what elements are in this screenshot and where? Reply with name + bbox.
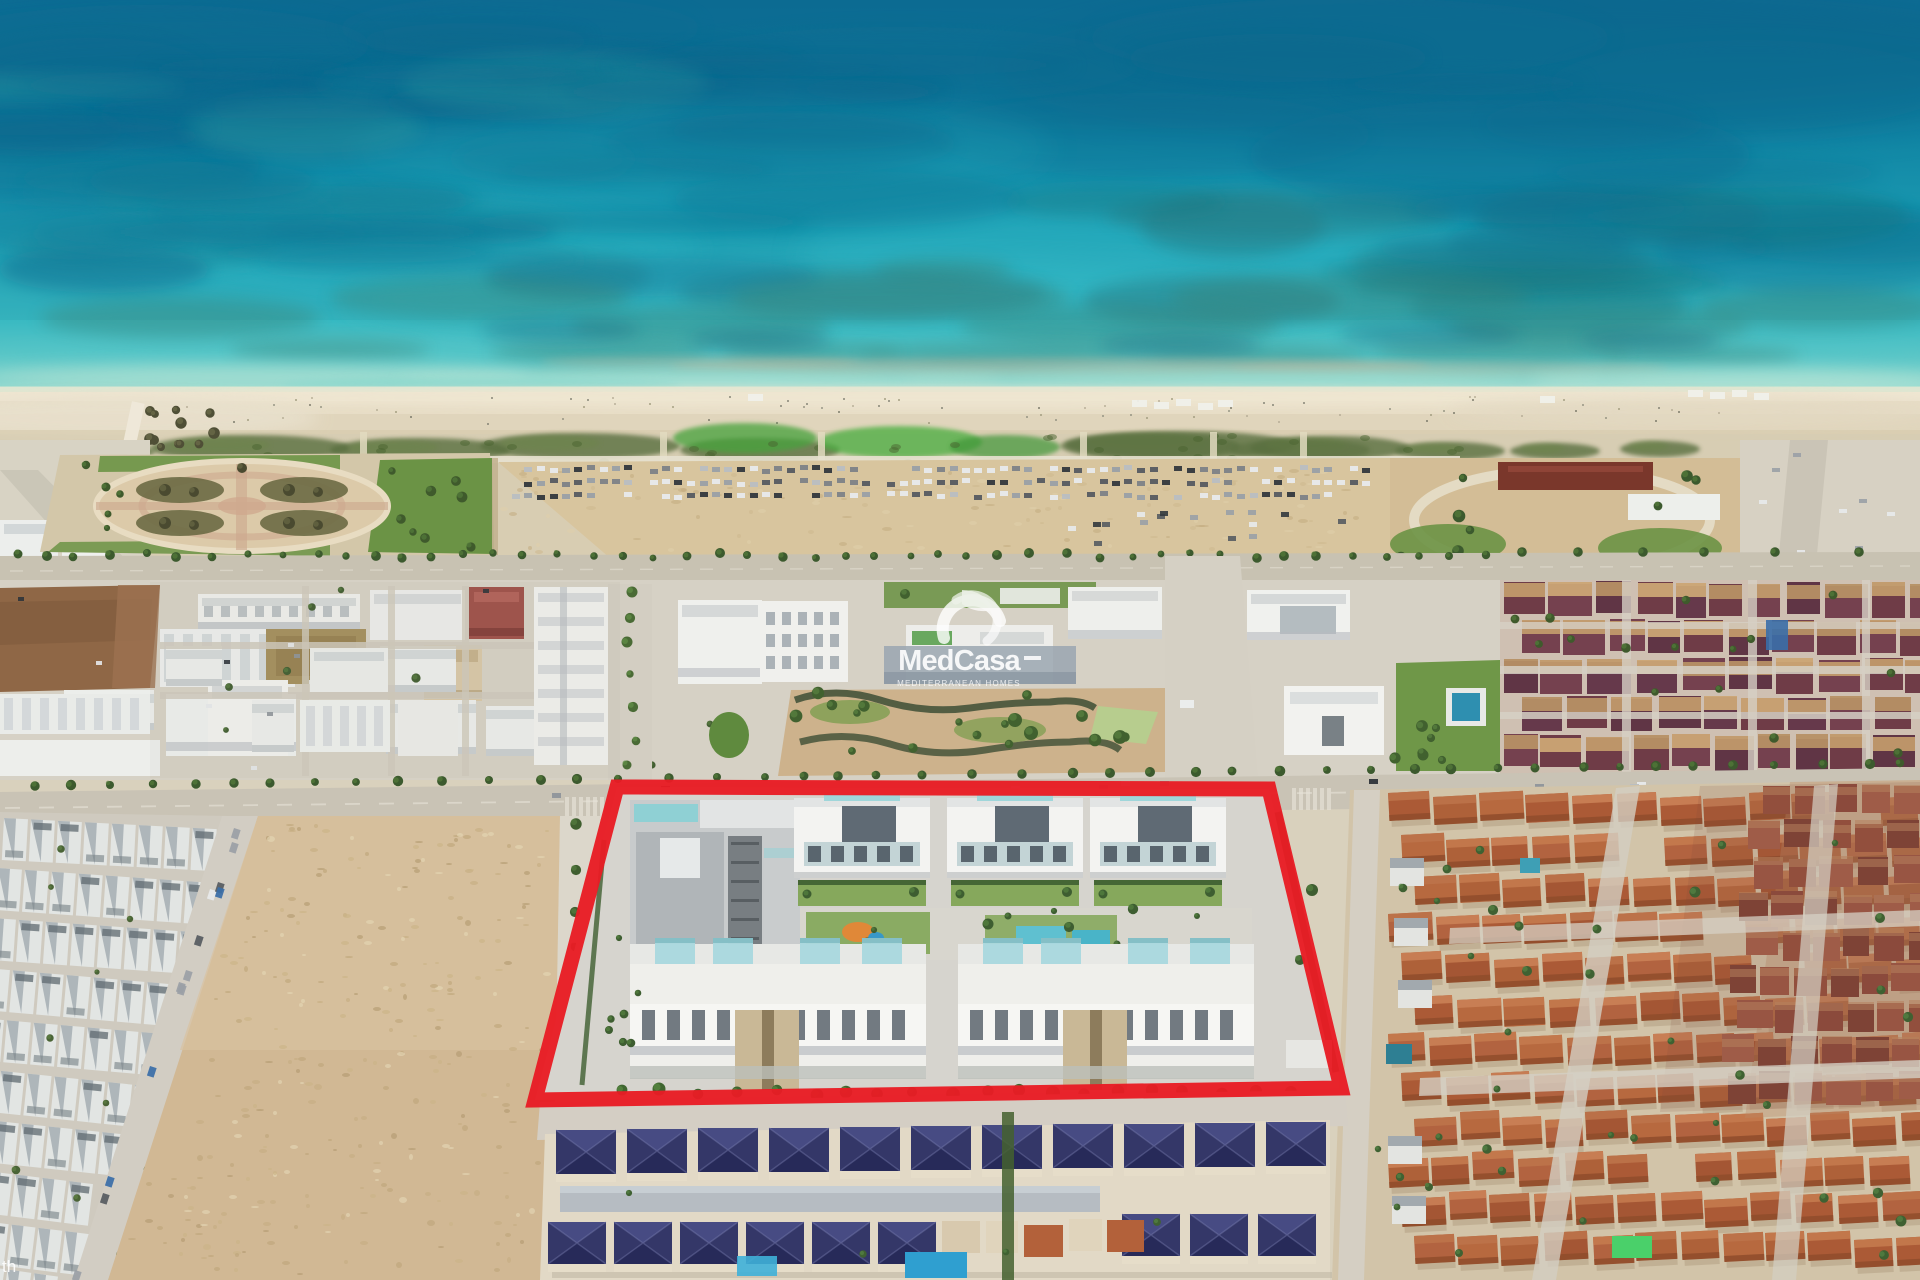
svg-text:MedCasa: MedCasa <box>898 645 1021 677</box>
svg-text:MEDITERRANEAN HOMES: MEDITERRANEAN HOMES <box>897 679 1021 688</box>
svg-text:th: th <box>2 1257 16 1276</box>
